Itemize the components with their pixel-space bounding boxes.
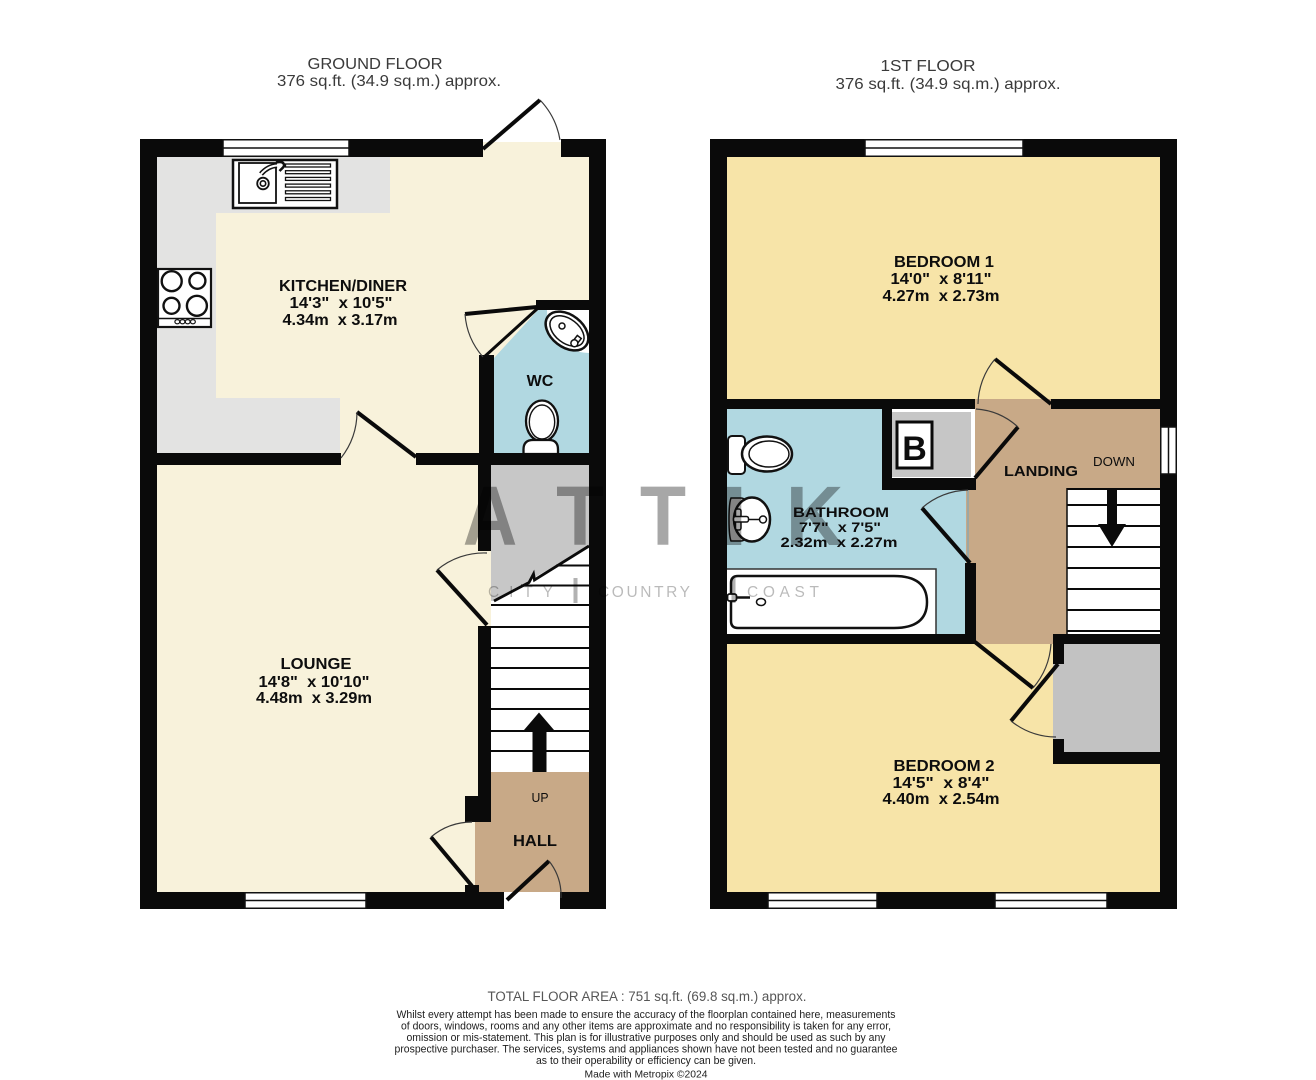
svg-text:1ST FLOOR: 1ST FLOOR [881,58,976,75]
svg-text:376 sq.ft. (34.9 sq.m.) approx: 376 sq.ft. (34.9 sq.m.) approx. [836,76,1061,93]
svg-text:as to their operability or eff: as to their operability or efficiency ca… [536,1055,756,1067]
svg-text:KITCHEN/DINER: KITCHEN/DINER [279,278,407,295]
svg-text:14'8" x 10'10": 14'8" x 10'10" [259,674,370,691]
svg-text:omission or mis-statement. Thi: omission or mis-statement. This plan is … [407,1032,887,1044]
svg-text:Whilst every attempt has been: Whilst every attempt has been made to en… [397,1009,896,1021]
svg-text:BEDROOM 1: BEDROOM 1 [894,254,994,271]
svg-text:Made with Metropix ©2024: Made with Metropix ©2024 [585,1069,708,1080]
svg-text:UP: UP [532,790,549,805]
svg-text:GROUND FLOOR: GROUND FLOOR [308,56,443,73]
svg-text:BEDROOM 2: BEDROOM 2 [894,758,995,775]
svg-text:7'7" x 7'5": 7'7" x 7'5" [799,520,881,535]
svg-text:TOTAL FLOOR AREA : 751 sq.ft.: TOTAL FLOOR AREA : 751 sq.ft. (69.8 sq.m… [488,989,807,1004]
svg-text:HALL: HALL [513,833,557,850]
svg-text:T: T [556,470,604,563]
svg-text:WC: WC [527,373,554,390]
svg-text:T: T [640,469,686,563]
svg-text:of doors, windows, rooms and a: of doors, windows, rooms and any other i… [401,1021,891,1033]
svg-text:B: B [902,430,927,468]
svg-text:A: A [463,469,518,563]
svg-text:LANDING: LANDING [1004,463,1078,480]
svg-text:prospective purchaser. The ser: prospective purchaser. The services, sys… [395,1044,898,1056]
svg-text:DOWN: DOWN [1093,454,1135,469]
svg-text:COAST: COAST [747,584,820,601]
svg-text:COUNTRY: COUNTRY [598,584,690,601]
svg-text:4.27m x 2.73m: 4.27m x 2.73m [883,288,1000,305]
svg-text:4.48m x 3.29m: 4.48m x 3.29m [256,690,372,707]
svg-text:2.32m x 2.27m: 2.32m x 2.27m [781,535,898,550]
svg-text:4.34m x 3.17m: 4.34m x 3.17m [283,312,398,329]
svg-text:14'5" x 8'4": 14'5" x 8'4" [893,775,990,792]
svg-text:I: I [720,469,748,563]
svg-text:4.40m x 2.54m: 4.40m x 2.54m [883,791,1000,808]
svg-text:14'0" x 8'11": 14'0" x 8'11" [891,271,992,288]
svg-text:BATHROOM: BATHROOM [793,505,889,520]
svg-text:376 sq.ft. (34.9 sq.m.) approx: 376 sq.ft. (34.9 sq.m.) approx. [277,73,501,90]
svg-text:LOUNGE: LOUNGE [281,656,352,673]
svg-text:14'3" x 10'5": 14'3" x 10'5" [290,295,393,312]
